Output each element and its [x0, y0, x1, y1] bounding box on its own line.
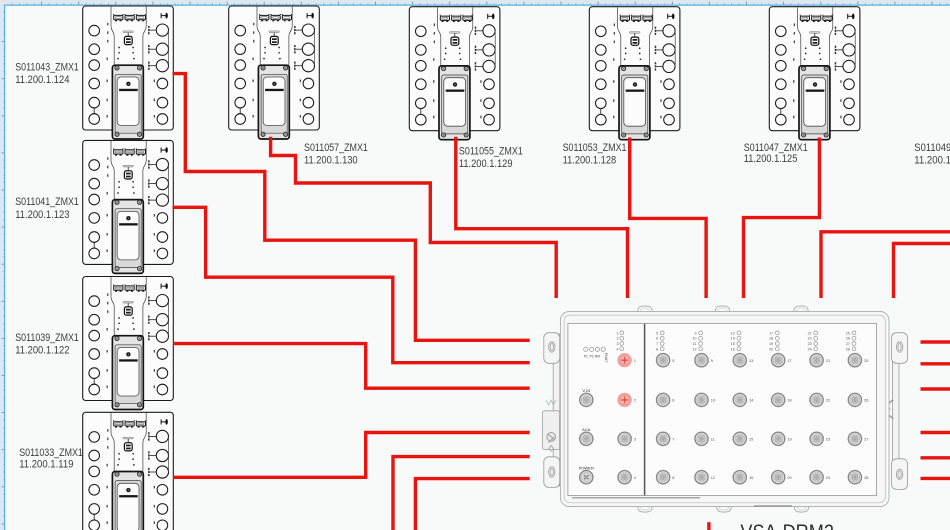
- svg-text:21: 21: [808, 331, 812, 335]
- svg-text:17: 17: [787, 358, 791, 363]
- svg-text:19: 19: [769, 342, 773, 346]
- svg-text:13: 13: [749, 358, 753, 363]
- svg-text:11.200.1.128: 11.200.1.128: [563, 154, 617, 166]
- svg-text:15: 15: [731, 342, 735, 346]
- svg-text:27: 27: [846, 342, 850, 346]
- svg-text:22: 22: [808, 337, 812, 341]
- svg-text:16: 16: [749, 475, 753, 480]
- svg-text:POWER: POWER: [579, 465, 594, 470]
- svg-text:25: 25: [864, 358, 868, 363]
- svg-text:13: 13: [731, 331, 735, 335]
- svg-text:6: 6: [656, 337, 658, 341]
- svg-text:11.200.1.122: 11.200.1.122: [15, 344, 69, 356]
- svg-text:3: 3: [617, 342, 619, 346]
- svg-text:11.200.1.123: 11.200.1.123: [15, 209, 69, 221]
- svg-text:12: 12: [693, 347, 697, 351]
- svg-text:5: 5: [672, 358, 674, 363]
- svg-text:5: 5: [656, 331, 658, 335]
- svg-text:2: 2: [634, 398, 636, 403]
- svg-text:S011039_ZMX1: S011039_ZMX1: [15, 332, 79, 344]
- svg-text:12: 12: [711, 475, 715, 480]
- svg-text:RM: RM: [595, 354, 600, 358]
- svg-text:18: 18: [769, 337, 773, 341]
- svg-text:FAULT: FAULT: [604, 353, 608, 363]
- svg-text:9: 9: [695, 331, 697, 335]
- svg-text:24: 24: [808, 347, 812, 351]
- svg-text:3: 3: [634, 436, 636, 441]
- svg-text:23: 23: [808, 342, 812, 346]
- svg-text:V.24: V.24: [582, 388, 591, 393]
- svg-text:22: 22: [826, 398, 830, 403]
- svg-text:21: 21: [826, 358, 830, 363]
- svg-text:11.200.1.124: 11.200.1.124: [15, 74, 69, 86]
- svg-text:S011053_ZMX1: S011053_ZMX1: [563, 142, 627, 154]
- svg-text:8: 8: [656, 347, 658, 351]
- svg-text:18: 18: [787, 398, 791, 403]
- svg-text:17: 17: [769, 331, 773, 335]
- svg-text:S011047_ZMX1: S011047_ZMX1: [744, 142, 808, 154]
- svg-text:7: 7: [672, 436, 674, 441]
- svg-text:11.200.1.1: 11.200.1.1: [914, 154, 950, 166]
- svg-text:6: 6: [672, 398, 674, 403]
- svg-text:26: 26: [846, 337, 850, 341]
- svg-text:S011049_Z: S011049_Z: [914, 142, 950, 154]
- svg-text:VSA-DRM2: VSA-DRM2: [740, 522, 834, 530]
- svg-text:20: 20: [769, 347, 773, 351]
- svg-text:ACA: ACA: [582, 427, 591, 432]
- svg-text:7: 7: [656, 342, 658, 346]
- svg-text:23: 23: [826, 436, 830, 441]
- svg-text:28: 28: [864, 475, 868, 480]
- svg-text:S011057_ZMX1: S011057_ZMX1: [304, 142, 368, 154]
- svg-text:10: 10: [693, 337, 697, 341]
- svg-text:11: 11: [711, 436, 715, 441]
- svg-text:S011033_ZMX1: S011033_ZMX1: [19, 447, 83, 459]
- svg-text:26: 26: [864, 398, 868, 403]
- svg-text:8: 8: [672, 475, 674, 480]
- svg-text:11.200.1.130: 11.200.1.130: [304, 154, 358, 166]
- svg-text:S011043_ZMX1: S011043_ZMX1: [15, 61, 79, 73]
- svg-text:15: 15: [749, 436, 753, 441]
- svg-text:25: 25: [846, 331, 850, 335]
- svg-text:1: 1: [617, 331, 619, 335]
- svg-text:S011055_ZMX1: S011055_ZMX1: [459, 145, 523, 157]
- svg-text:11.200.1.119: 11.200.1.119: [19, 459, 73, 471]
- svg-text:28: 28: [846, 347, 850, 351]
- svg-text:11: 11: [693, 342, 697, 346]
- svg-text:14: 14: [731, 337, 735, 341]
- svg-text:19: 19: [787, 436, 791, 441]
- svg-text:11.200.1.129: 11.200.1.129: [459, 158, 513, 170]
- svg-text:4: 4: [617, 347, 619, 351]
- svg-text:2: 2: [617, 337, 619, 341]
- svg-text:S011041_ZMX1: S011041_ZMX1: [15, 196, 79, 208]
- svg-text:16: 16: [731, 347, 735, 351]
- svg-text:P2: P2: [590, 354, 594, 358]
- svg-text:27: 27: [864, 436, 868, 441]
- svg-text:11.200.1.125: 11.200.1.125: [744, 153, 798, 165]
- svg-text:9: 9: [711, 358, 713, 363]
- svg-text:1: 1: [634, 358, 636, 363]
- svg-text:P1: P1: [584, 354, 588, 358]
